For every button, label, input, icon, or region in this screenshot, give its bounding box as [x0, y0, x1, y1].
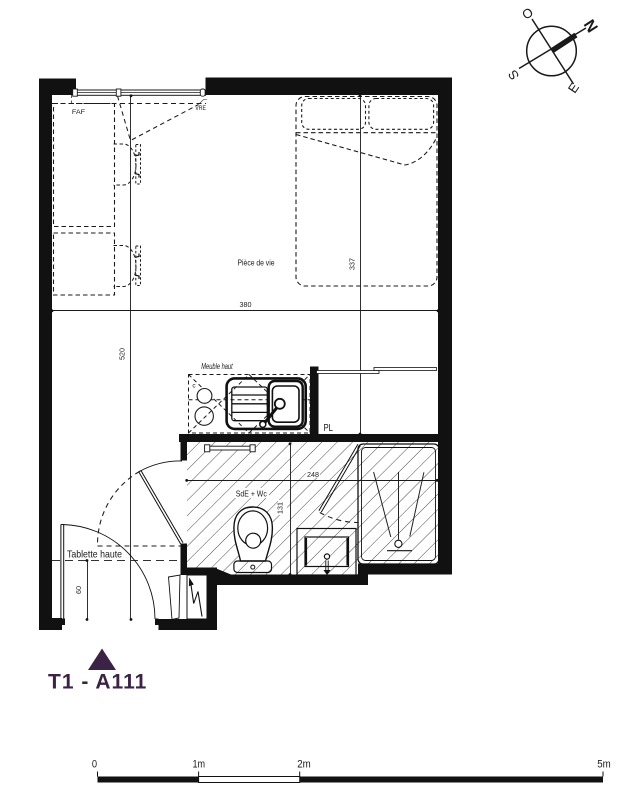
svg-text:SdE + Wc: SdE + Wc: [236, 490, 267, 499]
svg-text:380: 380: [240, 300, 252, 309]
svg-text:FAF: FAF: [72, 109, 85, 116]
svg-text:2m: 2m: [297, 759, 311, 771]
svg-text:Meuble haut: Meuble haut: [201, 362, 233, 371]
svg-text:VRE: VRE: [195, 105, 206, 112]
svg-text:Pièce de vie: Pièce de vie: [238, 259, 275, 268]
svg-text:520: 520: [118, 348, 127, 360]
svg-text:248: 248: [307, 470, 319, 479]
svg-text:5m: 5m: [597, 759, 611, 771]
svg-text:1m: 1m: [193, 759, 206, 771]
svg-text:0: 0: [92, 759, 97, 771]
svg-text:Tablette haute: Tablette haute: [67, 549, 122, 561]
svg-text:T1 - A111: T1 - A111: [48, 671, 147, 694]
svg-text:131: 131: [276, 502, 285, 514]
svg-text:60: 60: [74, 586, 83, 594]
svg-text:337: 337: [348, 258, 357, 270]
svg-text:PL: PL: [324, 423, 334, 434]
